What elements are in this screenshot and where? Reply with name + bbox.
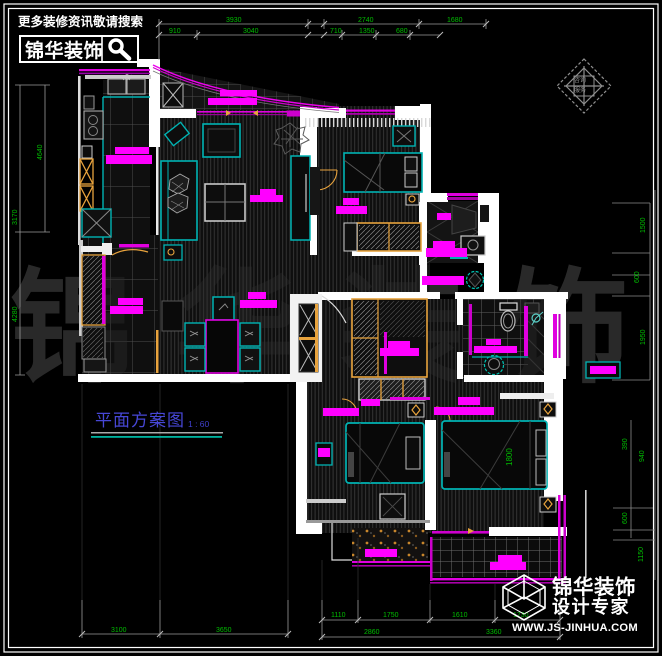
svg-text:3930: 3930 <box>226 17 242 24</box>
svg-text:1500: 1500 <box>640 217 647 233</box>
svg-text:1750: 1750 <box>383 612 399 619</box>
svg-text:390: 390 <box>622 438 629 450</box>
svg-text:600: 600 <box>622 512 629 524</box>
svg-text:710: 710 <box>330 28 342 35</box>
svg-text:680: 680 <box>396 28 408 35</box>
svg-text:咨询: 咨询 <box>574 76 586 84</box>
svg-text:4640: 4640 <box>37 144 44 160</box>
svg-text:600: 600 <box>634 271 641 283</box>
svg-text:3170: 3170 <box>12 209 19 225</box>
svg-text:更多装修资讯敬请搜索: 更多装修资讯敬请搜索 <box>18 14 144 29</box>
svg-text:3650: 3650 <box>216 627 232 634</box>
svg-text:1800: 1800 <box>505 448 514 466</box>
svg-text:1610: 1610 <box>452 612 468 619</box>
svg-text:WWW.JS-JINHUA.COM: WWW.JS-JINHUA.COM <box>512 622 638 634</box>
svg-text:910: 910 <box>169 28 181 35</box>
svg-text:1950: 1950 <box>640 329 647 345</box>
svg-text:锦华装饰: 锦华装饰 <box>552 575 636 599</box>
svg-text:4280: 4280 <box>12 306 19 322</box>
svg-text:平面方案图: 平面方案图 <box>95 411 185 430</box>
svg-text:2740: 2740 <box>358 17 374 24</box>
svg-text:1 : 60: 1 : 60 <box>188 419 210 429</box>
svg-text:锦华装饰: 锦华装饰 <box>25 39 103 62</box>
svg-text:1680: 1680 <box>447 17 463 24</box>
svg-text:3040: 3040 <box>243 28 259 35</box>
svg-text:1350: 1350 <box>359 28 375 35</box>
svg-text:1150: 1150 <box>638 547 645 562</box>
svg-text:1110: 1110 <box>331 612 346 619</box>
svg-text:3360: 3360 <box>486 629 502 636</box>
svg-text:服务: 服务 <box>574 86 586 94</box>
svg-text:2860: 2860 <box>364 629 380 636</box>
svg-text:3100: 3100 <box>111 627 127 634</box>
svg-text:设计专家: 设计专家 <box>552 596 630 617</box>
svg-text:940: 940 <box>639 450 646 462</box>
